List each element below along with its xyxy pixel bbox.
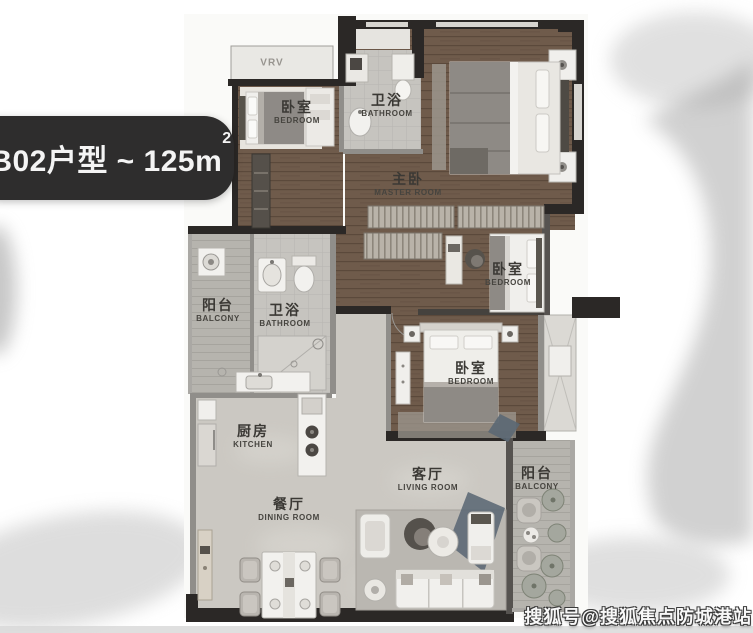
bed-headboard: [536, 238, 542, 308]
bedroom-right-furniture: [490, 234, 544, 312]
pillow: [248, 120, 257, 138]
cabinet: [198, 400, 216, 420]
window-right: [574, 84, 582, 140]
blanket: [424, 386, 498, 422]
floor-plan-page: VRV 卧室 BEDROOM 卫浴 BATHROOM 主卧 MASTER ROO…: [0, 0, 753, 633]
desk: [446, 236, 462, 284]
floor-plan-svg: [0, 0, 753, 633]
pillow: [248, 97, 257, 115]
sofa-pillow: [401, 574, 413, 585]
pillow: [464, 336, 492, 349]
pillow: [527, 274, 537, 302]
sofa-pillow: [479, 574, 491, 585]
toilet: [395, 80, 411, 100]
bed-headboard: [560, 80, 569, 152]
kitchen-sink: [246, 376, 272, 389]
sideboard: [198, 530, 212, 600]
bedside-rug: [432, 64, 446, 170]
window-top-2: [436, 22, 538, 27]
shaft-window: [549, 346, 571, 376]
master-bedroom-furniture: [432, 50, 576, 182]
window-top-1: [366, 22, 408, 27]
unit-title: B02户型 ~ 125m: [0, 136, 222, 180]
watermark: 搜狐号@搜狐焦点防城港站: [524, 603, 752, 629]
dresser: [396, 352, 410, 404]
sink: [263, 264, 281, 286]
bed-headboard: [239, 96, 246, 140]
patio-table: [523, 527, 539, 543]
toilet: [294, 266, 314, 292]
unit-title-badge: B02户型 ~ 125m2: [0, 116, 234, 200]
wardrobe: [458, 206, 544, 228]
pillow: [527, 240, 537, 268]
wardrobe: [368, 206, 454, 228]
toilet-tank: [392, 54, 414, 80]
sofa-pillow: [440, 574, 452, 585]
shower-nook: [356, 29, 410, 49]
pillow: [536, 114, 549, 152]
unit-title-sup: 2: [222, 130, 231, 148]
living-furniture: [356, 492, 506, 610]
pillow: [536, 70, 549, 108]
toilet-tank: [292, 256, 316, 266]
wardrobe: [364, 233, 442, 259]
throw-blanket: [450, 148, 488, 174]
hvac-vrv-label: VRV: [260, 58, 283, 69]
plant: [548, 524, 566, 542]
pillow: [430, 336, 458, 349]
